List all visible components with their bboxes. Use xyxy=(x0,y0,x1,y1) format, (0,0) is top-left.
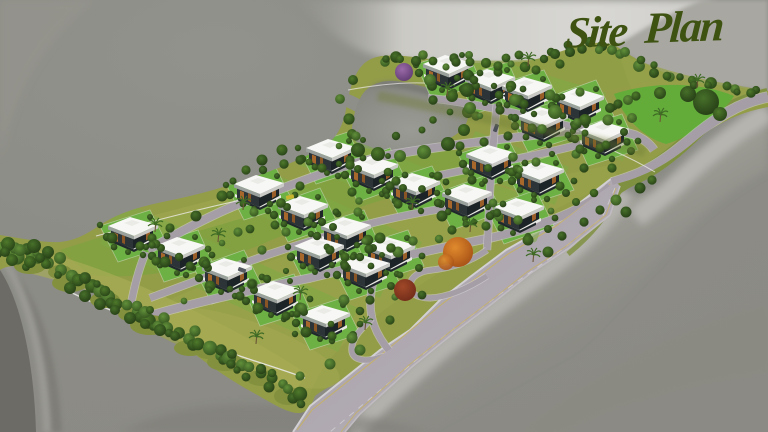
svg-text:Site: Site xyxy=(564,6,629,57)
svg-text:Plan: Plan xyxy=(642,1,724,53)
